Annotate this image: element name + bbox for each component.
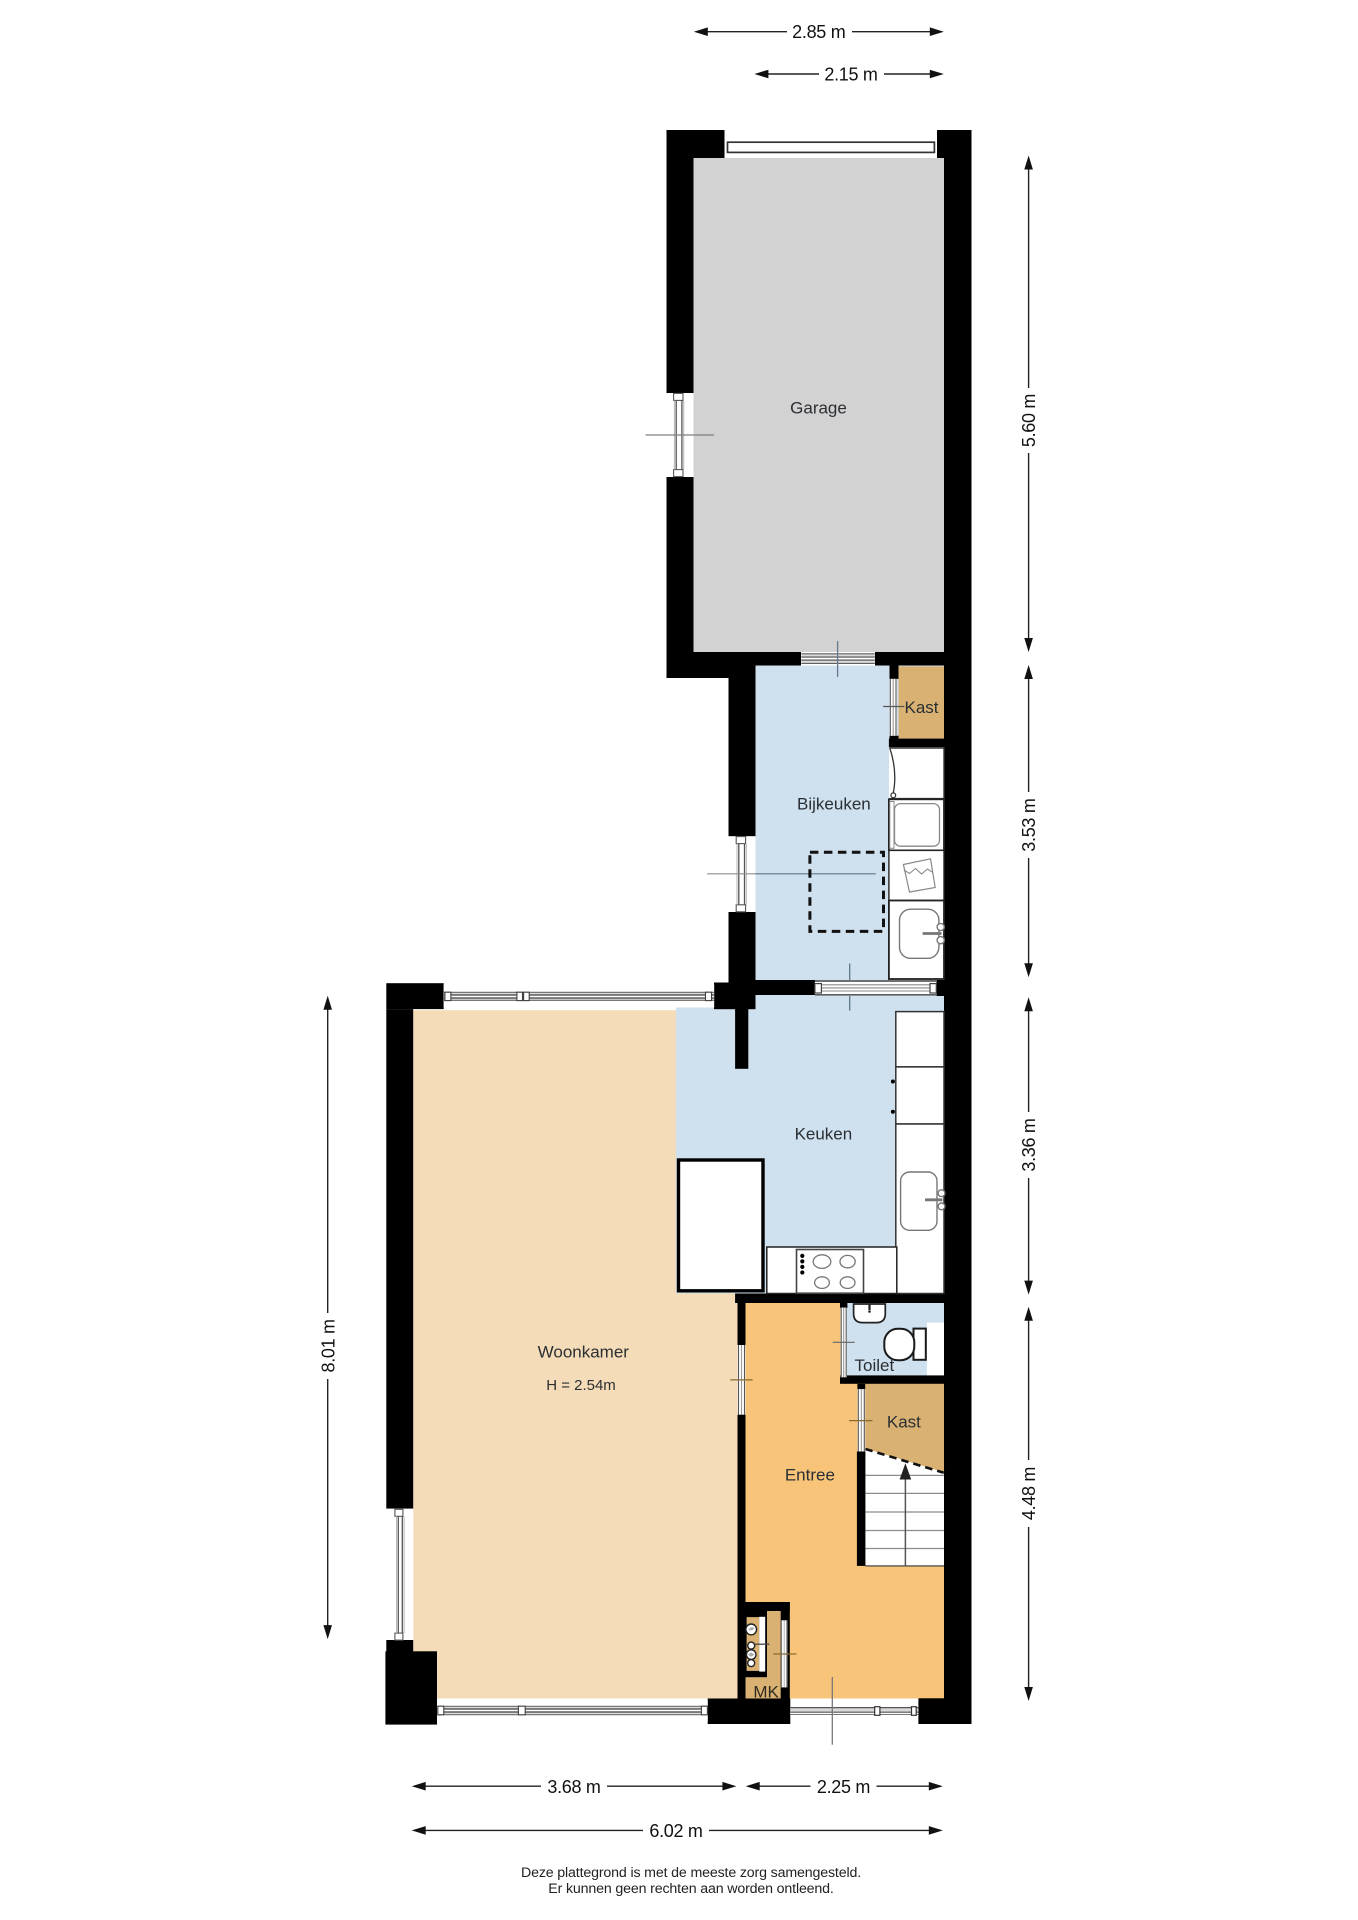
svg-text:Keuken: Keuken [795,1125,853,1144]
svg-text:6.02 m: 6.02 m [649,1821,702,1841]
svg-text:2.85 m: 2.85 m [792,22,845,42]
svg-text:2.15 m: 2.15 m [824,65,877,85]
svg-text:Bijkeuken: Bijkeuken [797,795,871,814]
svg-text:Er kunnen geen rechten aan wor: Er kunnen geen rechten aan worden ontlee… [548,1881,833,1897]
svg-text:4.48 m: 4.48 m [1019,1467,1039,1520]
svg-text:Toilet: Toilet [855,1356,895,1375]
svg-text:Kast: Kast [887,1412,921,1431]
svg-text:Garage: Garage [790,398,847,417]
svg-text:Entree: Entree [785,1465,835,1484]
svg-text:MK: MK [753,1682,779,1701]
svg-text:H = 2.54m: H = 2.54m [546,1377,616,1394]
svg-text:3.68 m: 3.68 m [547,1777,600,1797]
svg-text:Kast: Kast [904,698,938,717]
svg-text:2.25 m: 2.25 m [817,1777,870,1797]
svg-text:8.01 m: 8.01 m [318,1319,338,1372]
svg-text:3.36 m: 3.36 m [1019,1118,1039,1171]
svg-text:Deze plattegrond is met de mee: Deze plattegrond is met de meeste zorg s… [521,1865,861,1881]
svg-text:5.60 m: 5.60 m [1019,394,1039,447]
svg-text:Woonkamer: Woonkamer [538,1342,630,1361]
svg-text:3.53 m: 3.53 m [1019,798,1039,851]
